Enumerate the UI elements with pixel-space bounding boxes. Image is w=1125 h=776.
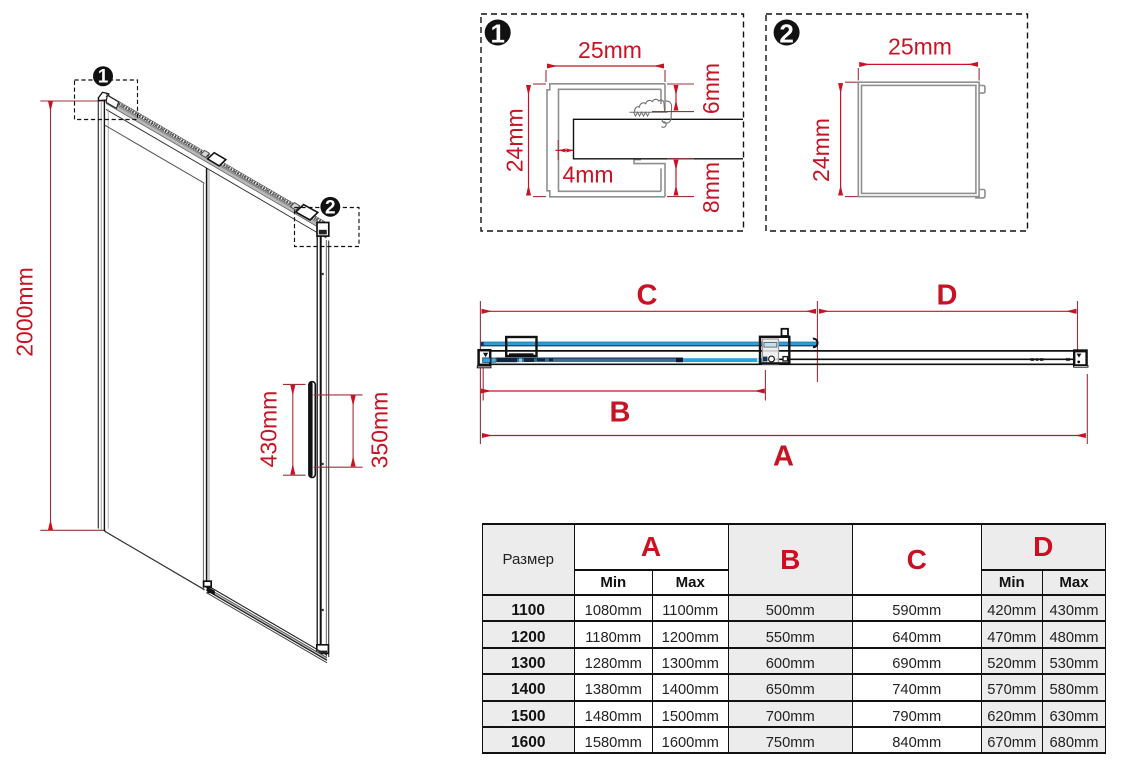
svg-text:8mm: 8mm — [698, 162, 724, 213]
svg-text:4mm: 4mm — [562, 162, 613, 188]
svg-text:A: A — [773, 441, 794, 473]
svg-text:25mm: 25mm — [888, 34, 952, 60]
svg-text:6mm: 6mm — [698, 63, 724, 114]
svg-text:B: B — [610, 397, 631, 429]
svg-text:1: 1 — [490, 19, 504, 49]
svg-text:2: 2 — [325, 197, 336, 218]
svg-text:1: 1 — [98, 67, 109, 88]
svg-text:2000mm: 2000mm — [11, 267, 37, 356]
svg-text:430mm: 430mm — [256, 391, 282, 468]
svg-text:24mm: 24mm — [808, 118, 834, 182]
svg-text:C: C — [637, 280, 658, 312]
svg-text:D: D — [937, 280, 958, 312]
svg-text:25mm: 25mm — [578, 37, 642, 63]
svg-text:24mm: 24mm — [502, 108, 528, 172]
svg-text:2: 2 — [779, 19, 793, 49]
svg-text:350mm: 350mm — [367, 392, 393, 469]
